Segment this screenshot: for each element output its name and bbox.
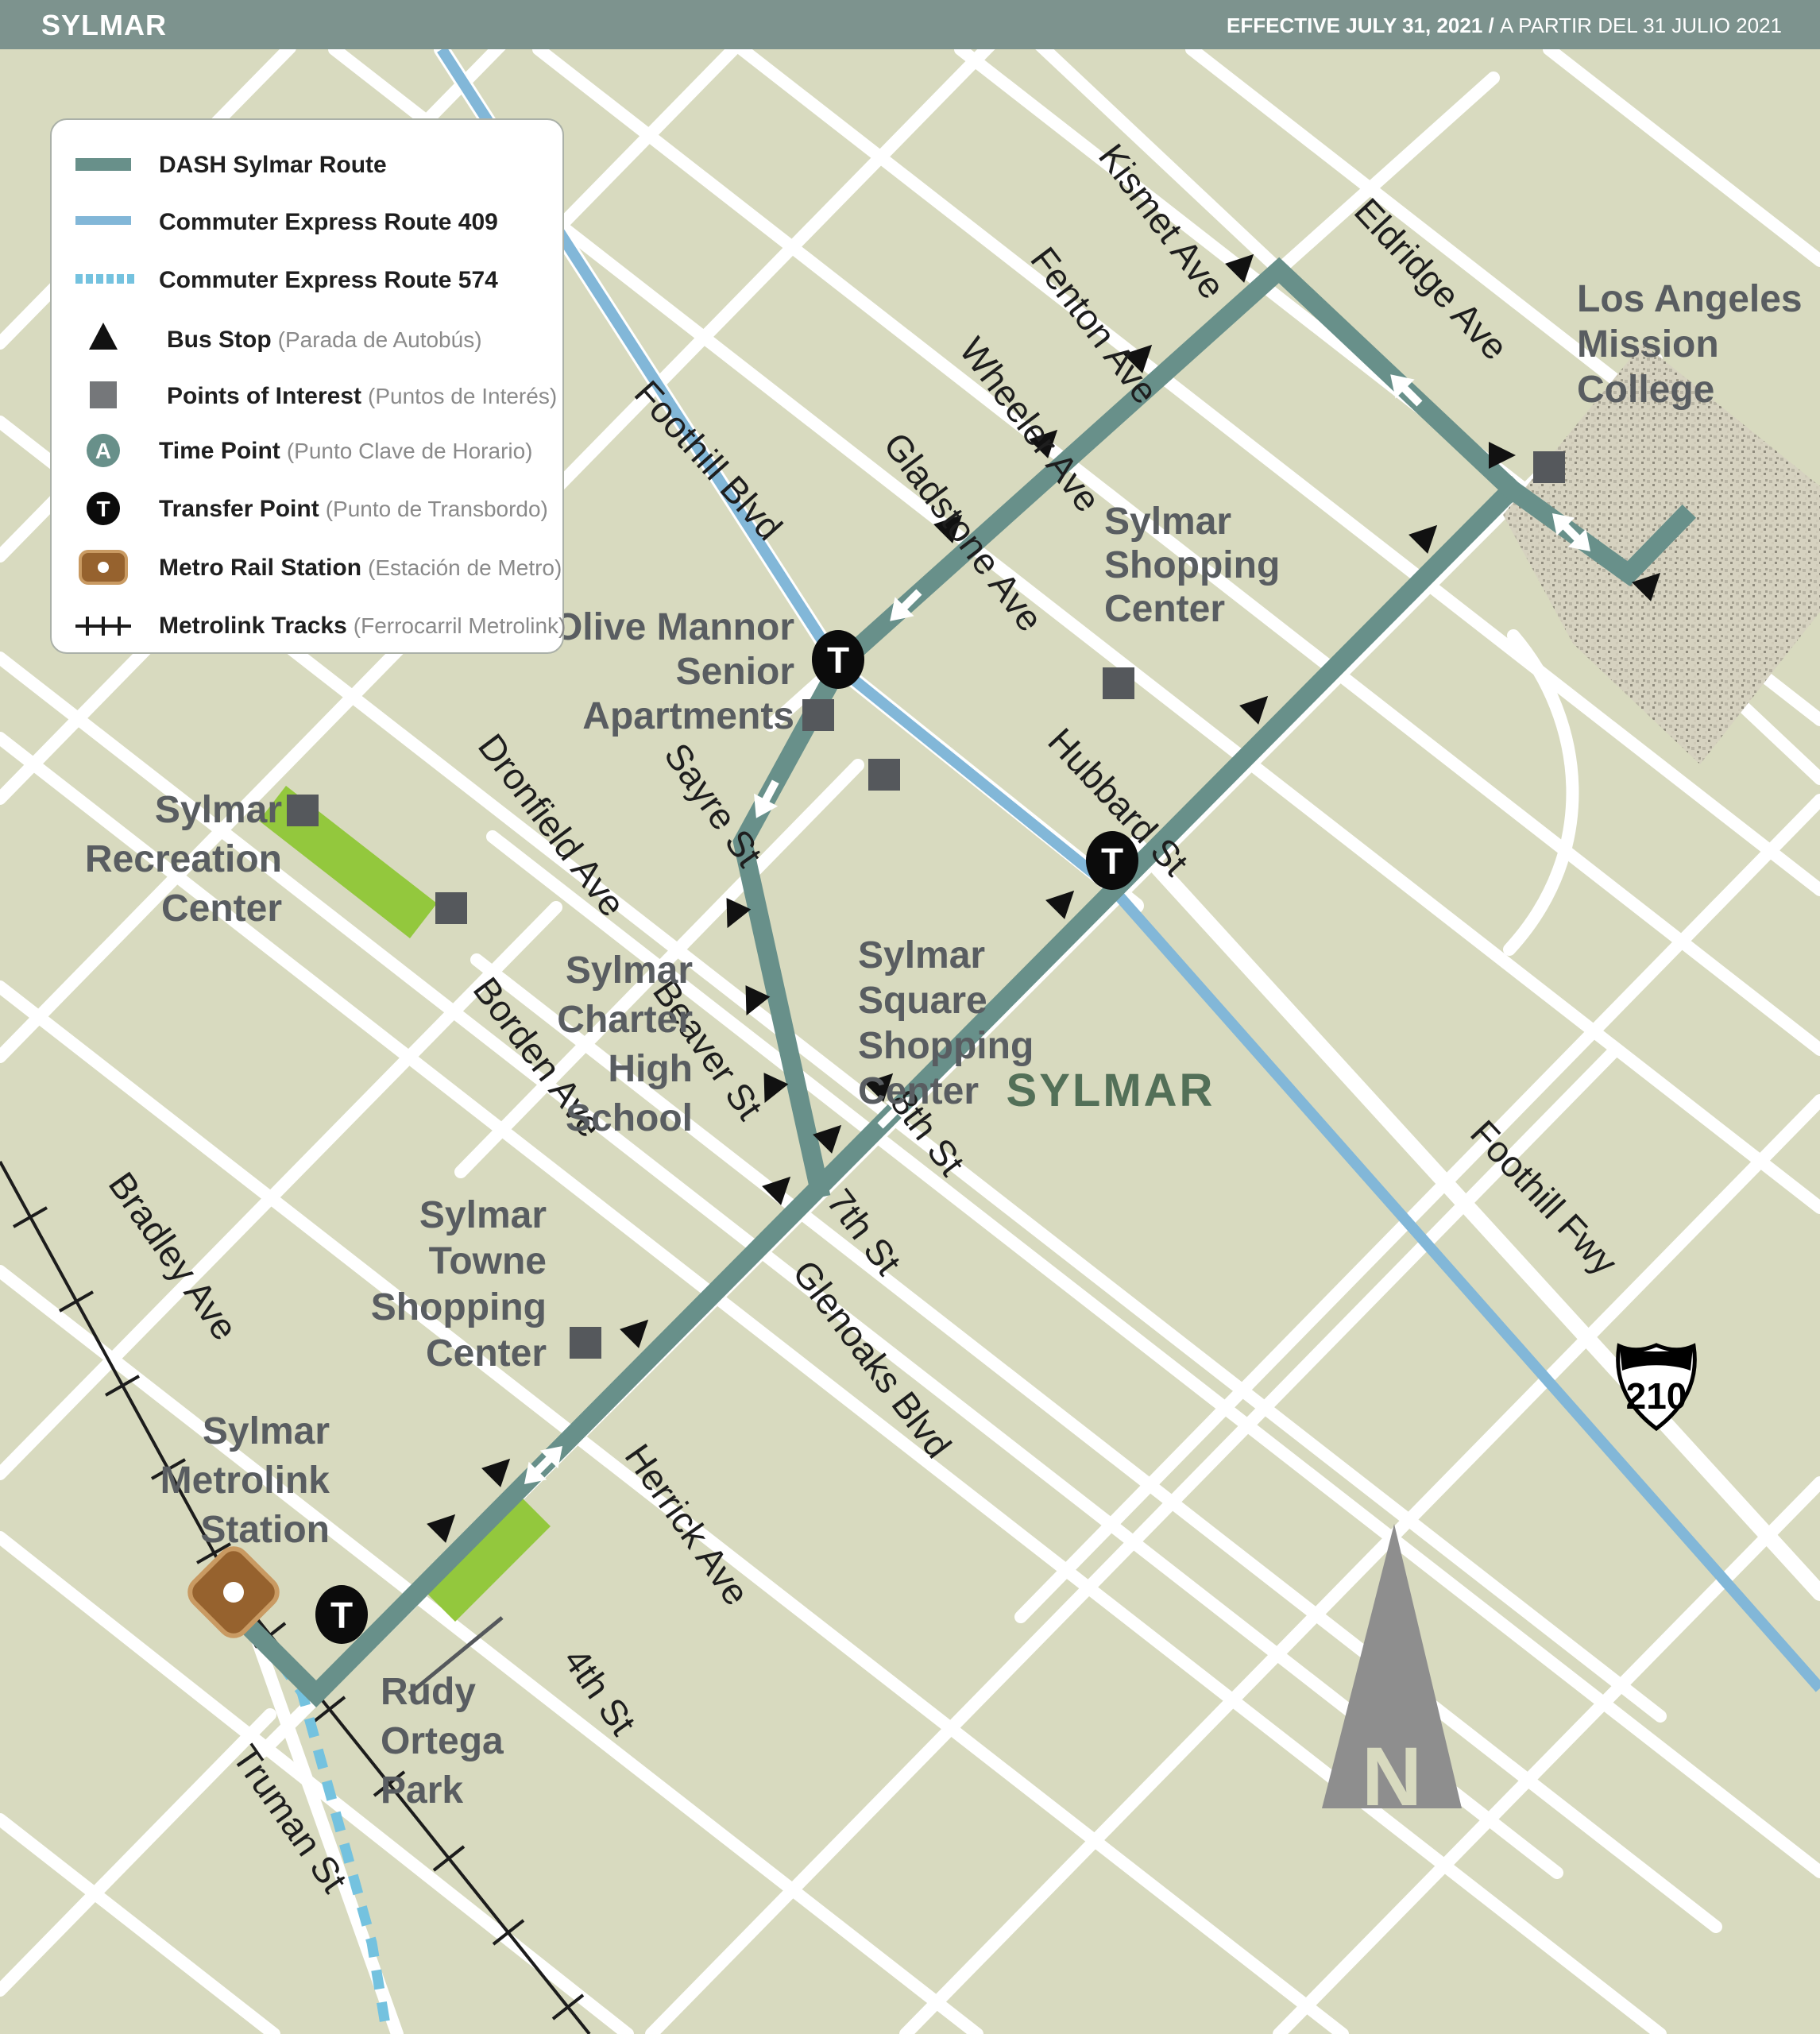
svg-text:Transfer Point(Punto de Transb: Transfer Point(Punto de Transbordo)	[159, 496, 548, 522]
page-title: SYLMAR	[41, 9, 167, 41]
svg-text:Shopping: Shopping	[371, 1286, 547, 1328]
svg-text:Square: Square	[858, 980, 987, 1022]
svg-text:School: School	[566, 1097, 693, 1139]
svg-text:A: A	[95, 439, 111, 463]
svg-text:Sylmar: Sylmar	[419, 1194, 547, 1236]
poi-square-square	[868, 759, 900, 791]
svg-text:Sylmar: Sylmar	[203, 1410, 330, 1452]
svg-text:Towne: Towne	[429, 1240, 547, 1282]
poi-square-olive	[802, 699, 834, 731]
svg-text:N: N	[1362, 1730, 1422, 1823]
svg-text:Rudy: Rudy	[381, 1671, 476, 1713]
svg-text:Metrolink: Metrolink	[160, 1460, 330, 1502]
svg-text:T: T	[96, 497, 110, 521]
legend-574: Commuter Express Route 574	[159, 267, 498, 293]
transfer-point-metrolink: T	[315, 1585, 368, 1644]
svg-text:Center: Center	[1104, 588, 1225, 630]
header-bar: SYLMAR EFFECTIVE JULY 31, 2021 / A PARTI…	[0, 0, 1820, 49]
svg-text:Shopping: Shopping	[858, 1025, 1034, 1067]
poi-icon	[90, 381, 117, 408]
svg-text:Senior: Senior	[676, 651, 794, 693]
svg-text:Park: Park	[381, 1769, 463, 1812]
svg-text:High: High	[608, 1048, 693, 1090]
svg-text:Sylmar: Sylmar	[155, 789, 282, 831]
sylmar-dash-map: T T T Kismet Ave Fenton Ave Wheeler Ave …	[0, 0, 1820, 2034]
metro-rail-icon	[80, 551, 126, 583]
svg-text:Mission: Mission	[1577, 323, 1719, 365]
svg-text:Recreation: Recreation	[85, 838, 282, 880]
svg-text:Center: Center	[426, 1332, 547, 1375]
poi-square-towne	[570, 1327, 601, 1359]
svg-text:Ortega: Ortega	[381, 1720, 504, 1762]
svg-text:Center: Center	[858, 1070, 979, 1112]
poi-square-college	[1533, 451, 1565, 483]
svg-text:Bus Stop(Parada de Autobús): Bus Stop(Parada de Autobús)	[167, 327, 482, 353]
transfer-point-foothill-sayre: T	[812, 630, 864, 689]
poi-square-shopping	[1103, 667, 1134, 699]
svg-text:Olive Mannor: Olive Mannor	[553, 606, 794, 648]
svg-text:Charter: Charter	[557, 999, 693, 1041]
svg-text:Los Angeles: Los Angeles	[1577, 278, 1803, 320]
svg-text:210: 210	[1626, 1375, 1687, 1417]
svg-text:Metro Rail Station(Estación de: Metro Rail Station(Estación de Metro)	[159, 555, 562, 581]
svg-text:Sylmar: Sylmar	[858, 934, 985, 976]
legend-409: Commuter Express Route 409	[159, 209, 498, 235]
svg-text:Sylmar: Sylmar	[1104, 501, 1231, 543]
svg-text:Center: Center	[161, 887, 282, 930]
svg-text:College: College	[1577, 369, 1714, 411]
legend-dash-route: DASH Sylmar Route	[159, 152, 387, 178]
svg-text:T: T	[827, 640, 849, 681]
svg-text:Sylmar: Sylmar	[566, 949, 693, 992]
svg-text:T: T	[1101, 841, 1123, 882]
poi-square-rec	[287, 795, 319, 826]
svg-text:Metrolink Tracks(Ferrocarril M: Metrolink Tracks(Ferrocarril Metrolink)	[159, 613, 566, 639]
svg-text:Shopping: Shopping	[1104, 544, 1280, 586]
interstate-210-shield: 210	[1618, 1345, 1695, 1429]
svg-text:Time Point(Punto Clave de Hora: Time Point(Punto Clave de Horario)	[159, 438, 533, 464]
poi-square-charter	[435, 892, 467, 924]
effective-date: EFFECTIVE JULY 31, 2021 / A PARTIR DEL 3…	[1227, 14, 1782, 37]
svg-text:Station: Station	[200, 1509, 330, 1551]
svg-text:Apartments: Apartments	[582, 695, 794, 737]
region-label: SYLMAR	[1007, 1065, 1215, 1116]
svg-text:T: T	[330, 1595, 353, 1636]
legend: DASH Sylmar Route Commuter Express Route…	[51, 119, 566, 653]
